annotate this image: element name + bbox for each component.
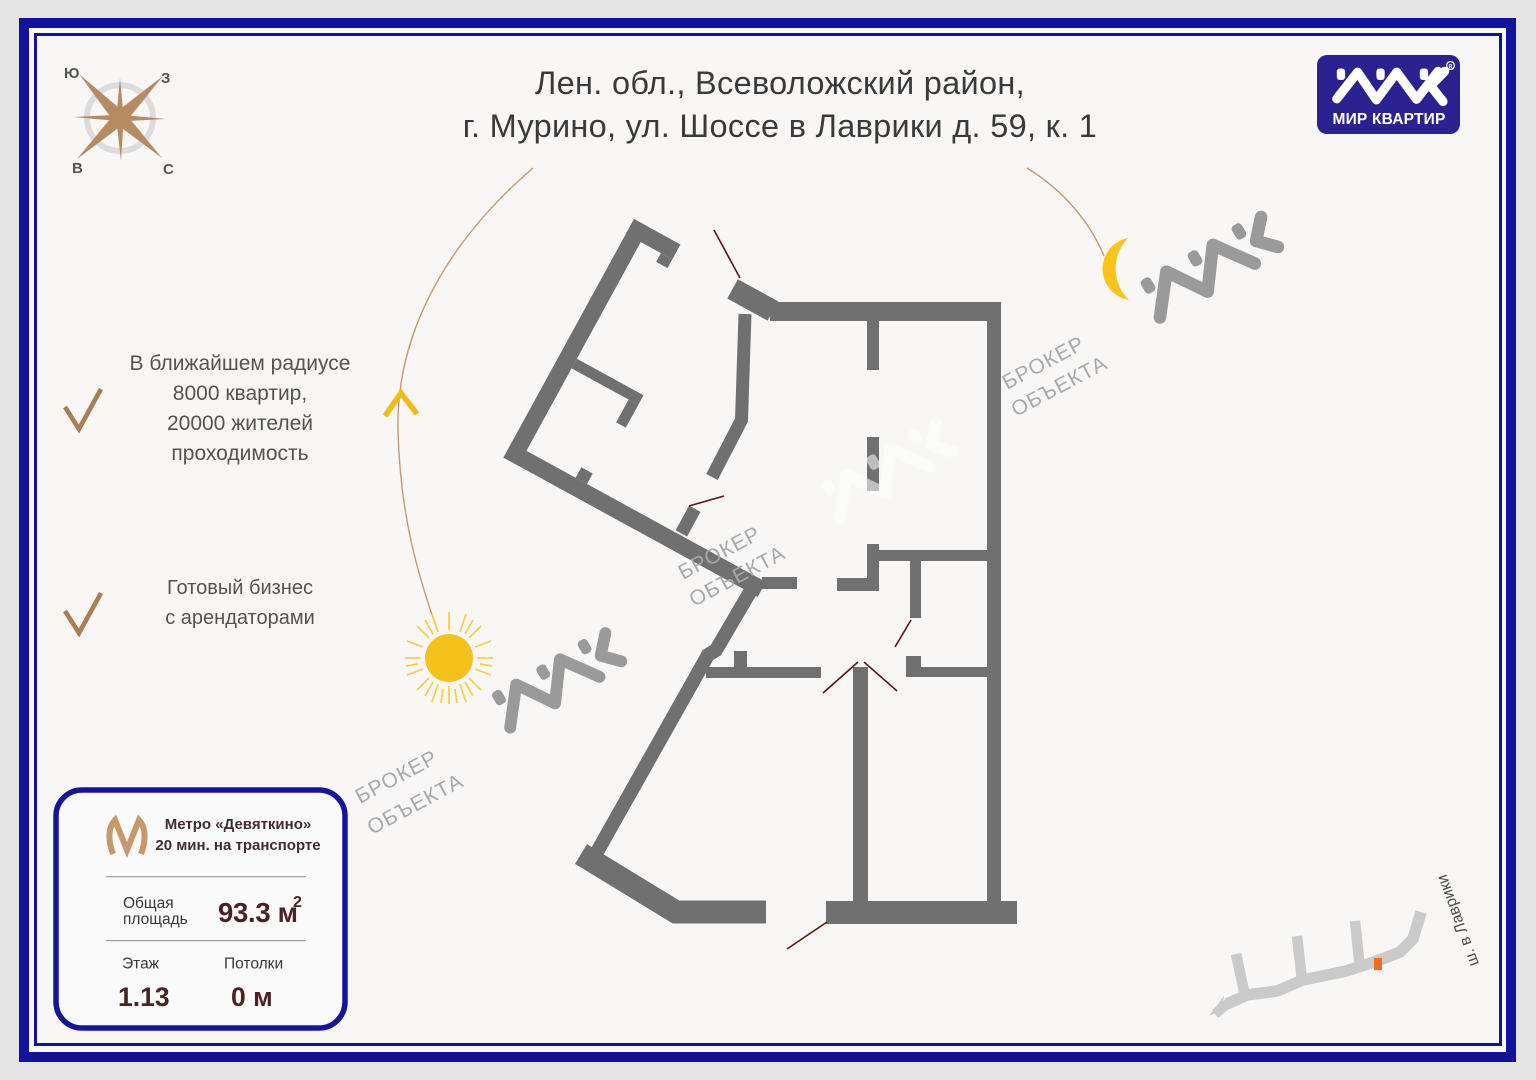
svg-text:20 мин. на транспорте: 20 мин. на транспорте [155, 837, 320, 854]
svg-text:В: В [72, 160, 83, 177]
svg-text:Общая: Общая [123, 895, 174, 912]
svg-text:0 м: 0 м [231, 982, 273, 1012]
svg-text:Этаж: Этаж [122, 956, 160, 973]
svg-text:Потолки: Потолки [224, 956, 283, 973]
svg-text:ш. в Лаврики: ш. в Лаврики [1434, 872, 1483, 968]
svg-text:площадь: площадь [123, 911, 188, 928]
svg-text:Ю: Ю [64, 65, 79, 82]
svg-text:З: З [161, 70, 170, 87]
svg-text:Метро «Девяткино»: Метро «Девяткино» [165, 816, 311, 833]
svg-text:R: R [1449, 64, 1453, 70]
svg-text:93.3 м: 93.3 м [218, 897, 298, 928]
svg-text:2: 2 [293, 894, 302, 911]
svg-text:МИР КВАРТИР: МИР КВАРТИР [1332, 111, 1445, 128]
svg-text:1.13: 1.13 [118, 982, 170, 1012]
svg-text:С: С [163, 161, 174, 178]
